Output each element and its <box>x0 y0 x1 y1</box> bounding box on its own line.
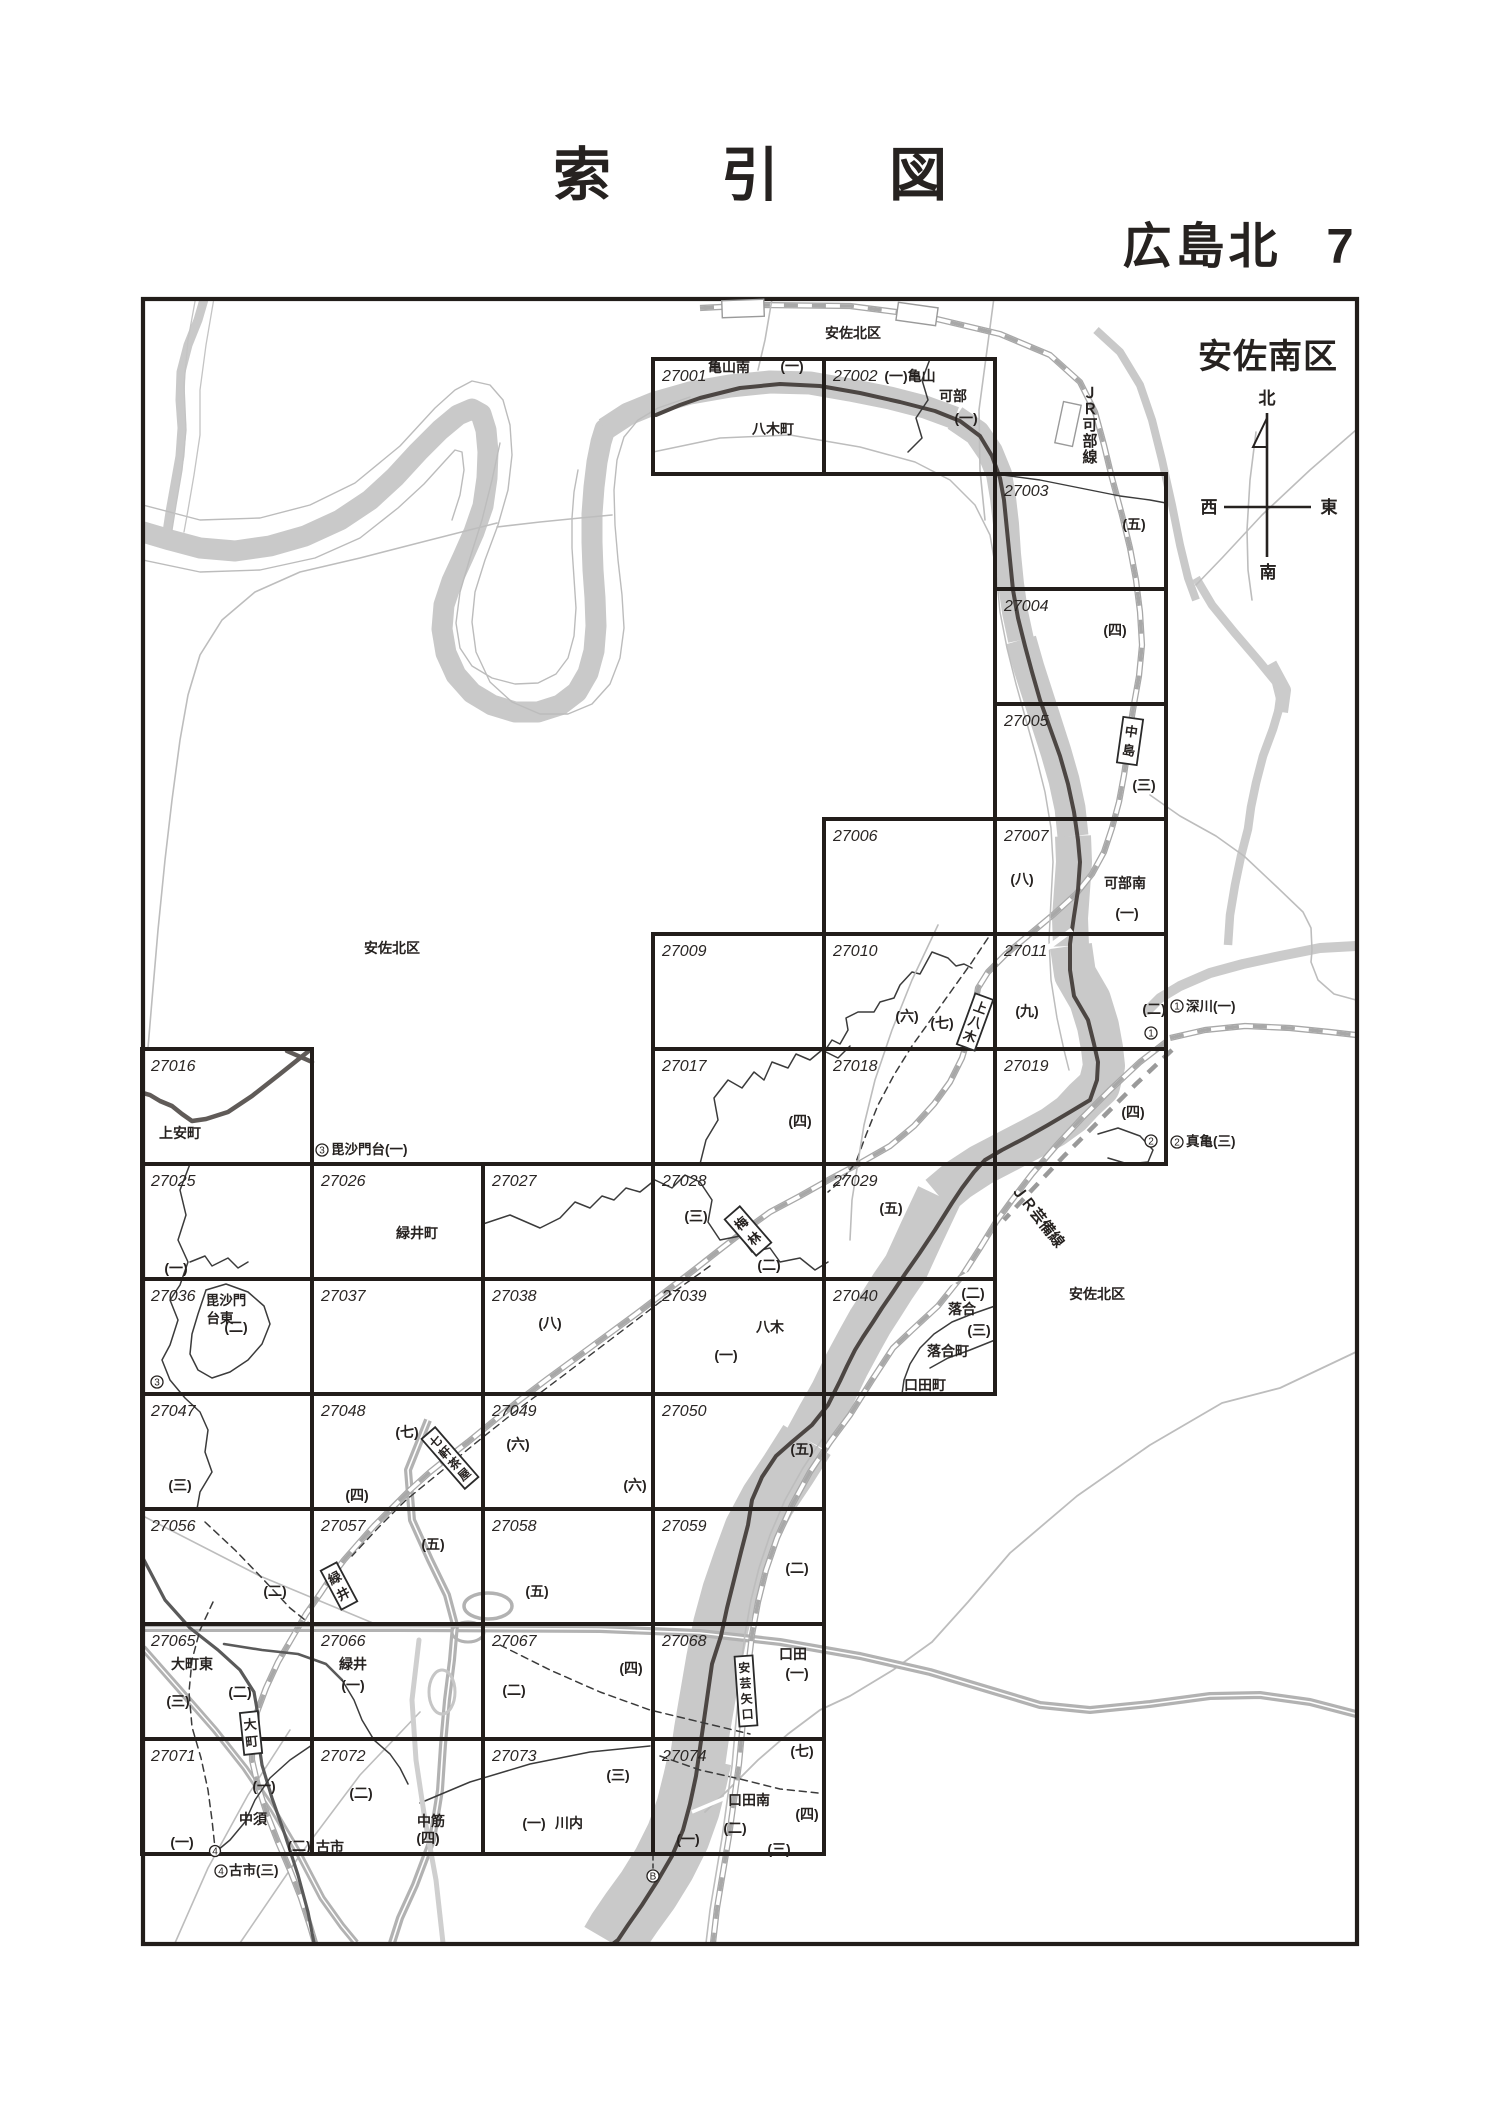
svg-text:27040: 27040 <box>832 1288 878 1305</box>
svg-text:27038: 27038 <box>491 1288 537 1305</box>
svg-text:(二): (二) <box>785 1560 808 1576</box>
svg-text:(六): (六) <box>506 1436 529 1452</box>
svg-text:(五): (五) <box>790 1441 813 1457</box>
svg-text:口田町: 口田町 <box>904 1377 946 1393</box>
svg-text:27071: 27071 <box>150 1748 196 1765</box>
svg-text:27001: 27001 <box>661 368 707 385</box>
svg-text:27028: 27028 <box>661 1173 707 1190</box>
svg-text:27048: 27048 <box>320 1403 366 1420</box>
svg-text:1: 1 <box>1174 1002 1180 1013</box>
svg-text:27016: 27016 <box>150 1058 196 1075</box>
svg-text:27039: 27039 <box>661 1288 707 1305</box>
svg-text:27027: 27027 <box>491 1173 538 1190</box>
svg-text:(五): (五) <box>879 1200 902 1216</box>
svg-text:中筋: 中筋 <box>417 1813 445 1829</box>
svg-text:(二): (二) <box>723 1820 746 1836</box>
svg-text:27073: 27073 <box>491 1748 537 1765</box>
svg-text:27067: 27067 <box>491 1633 538 1650</box>
svg-text:27049: 27049 <box>491 1403 537 1420</box>
svg-text:Ｊ: Ｊ <box>1082 385 1097 402</box>
svg-text:(四): (四) <box>619 1660 642 1676</box>
svg-text:島: 島 <box>1121 742 1136 759</box>
svg-text:(一): (一) <box>522 1815 545 1831</box>
svg-text:27011: 27011 <box>1003 943 1047 960</box>
svg-text:古市: 古市 <box>316 1839 344 1855</box>
svg-text:可部南: 可部南 <box>1104 875 1146 891</box>
svg-text:中須: 中須 <box>239 1811 268 1827</box>
svg-text:2: 2 <box>1148 1137 1154 1148</box>
svg-text:大町東: 大町東 <box>171 1656 213 1672</box>
svg-text:緑井町: 緑井町 <box>396 1225 438 1241</box>
svg-text:北: 北 <box>1259 389 1276 408</box>
svg-text:(三): (三) <box>767 1841 790 1857</box>
svg-text:(三): (三) <box>967 1322 990 1338</box>
svg-text:西: 西 <box>1201 498 1218 517</box>
svg-text:27029: 27029 <box>832 1173 878 1190</box>
svg-text:(二): (二) <box>228 1684 251 1700</box>
svg-text:落合: 落合 <box>948 1301 977 1317</box>
svg-text:27072: 27072 <box>320 1748 366 1765</box>
svg-text:7: 7 <box>1326 220 1353 274</box>
svg-text:中: 中 <box>1124 723 1139 740</box>
svg-text:(四): (四) <box>795 1806 818 1822</box>
svg-text:東: 東 <box>1321 497 1338 517</box>
svg-text:27057: 27057 <box>320 1518 367 1535</box>
svg-text:(一): (一) <box>780 358 803 374</box>
svg-text:27047: 27047 <box>150 1403 197 1420</box>
svg-text:(四): (四) <box>1121 1104 1144 1120</box>
svg-text:(六): (六) <box>623 1477 646 1493</box>
svg-text:(三): (三) <box>684 1208 707 1224</box>
svg-text:(二): (二) <box>502 1682 525 1698</box>
svg-text:3: 3 <box>319 1146 325 1157</box>
svg-text:3: 3 <box>154 1378 160 1389</box>
svg-text:口: 口 <box>741 1707 754 1722</box>
svg-text:4: 4 <box>218 1867 224 1878</box>
svg-text:(一): (一) <box>1115 905 1138 921</box>
svg-text:27059: 27059 <box>661 1518 707 1535</box>
svg-text:(二): (二) <box>287 1838 310 1854</box>
svg-text:(五): (五) <box>1122 516 1145 532</box>
svg-text:27002: 27002 <box>832 368 878 385</box>
svg-text:27005: 27005 <box>1003 713 1049 730</box>
svg-text:安佐北区: 安佐北区 <box>364 940 420 956</box>
svg-text:27009: 27009 <box>661 943 707 960</box>
svg-text:(四): (四) <box>416 1830 439 1846</box>
svg-text:(一): (一) <box>252 1778 275 1794</box>
svg-text:(一): (一) <box>714 1347 737 1363</box>
svg-text:広島北: 広島北 <box>1122 220 1281 274</box>
svg-text:深川(一): 深川(一) <box>1186 998 1236 1014</box>
svg-text:部: 部 <box>1082 432 1097 450</box>
svg-text:川内: 川内 <box>554 1815 583 1831</box>
svg-text:27003: 27003 <box>1003 483 1049 500</box>
svg-text:(一): (一) <box>164 1260 187 1276</box>
svg-text:八木: 八木 <box>755 1319 785 1335</box>
svg-text:(一): (一) <box>676 1831 699 1847</box>
svg-text:27050: 27050 <box>661 1403 707 1420</box>
svg-text:(三): (三) <box>168 1477 191 1493</box>
svg-text:(七): (七) <box>395 1424 418 1440</box>
svg-text:(一): (一) <box>785 1665 808 1681</box>
svg-text:(二): (二) <box>961 1285 984 1301</box>
svg-text:(二): (二) <box>349 1785 372 1801</box>
svg-text:27074: 27074 <box>661 1748 707 1765</box>
svg-text:(六): (六) <box>895 1008 918 1024</box>
svg-text:安佐北区: 安佐北区 <box>1069 1286 1125 1302</box>
svg-text:毘沙門: 毘沙門 <box>206 1293 247 1308</box>
svg-text:27037: 27037 <box>320 1288 367 1305</box>
svg-text:27025: 27025 <box>150 1173 196 1190</box>
svg-text:B: B <box>650 1872 657 1883</box>
svg-text:真亀(三): 真亀(三) <box>1186 1133 1236 1149</box>
svg-text:大: 大 <box>243 1716 258 1732</box>
svg-text:1: 1 <box>1148 1029 1154 1040</box>
svg-text:芸: 芸 <box>739 1675 752 1691</box>
svg-text:(五): (五) <box>421 1536 444 1552</box>
svg-text:(一): (一) <box>170 1834 193 1850</box>
svg-text:27058: 27058 <box>491 1518 537 1535</box>
svg-text:Ｒ: Ｒ <box>1082 401 1097 418</box>
svg-text:(八): (八) <box>538 1315 561 1331</box>
svg-text:27010: 27010 <box>832 943 878 960</box>
svg-text:(四): (四) <box>1103 622 1126 638</box>
svg-text:図: 図 <box>889 143 947 208</box>
svg-text:口田: 口田 <box>779 1646 807 1662</box>
svg-text:(二): (二) <box>757 1257 780 1273</box>
svg-text:亀山南: 亀山南 <box>708 359 750 375</box>
svg-text:毘沙門台(一): 毘沙門台(一) <box>331 1141 408 1157</box>
svg-text:南: 南 <box>1260 562 1277 582</box>
svg-text:27018: 27018 <box>832 1058 878 1075</box>
svg-text:27007: 27007 <box>1003 828 1050 845</box>
svg-text:索: 索 <box>553 143 611 208</box>
svg-text:安: 安 <box>738 1660 751 1676</box>
svg-text:落合町: 落合町 <box>927 1343 969 1359</box>
svg-text:町: 町 <box>245 1733 260 1749</box>
svg-text:口田南: 口田南 <box>728 1792 770 1808</box>
svg-text:安佐南区: 安佐南区 <box>1198 338 1338 376</box>
svg-text:(七): (七) <box>930 1015 953 1031</box>
svg-text:緑井: 緑井 <box>339 1656 367 1672</box>
svg-text:(二): (二) <box>1142 1001 1165 1017</box>
svg-text:(三): (三) <box>166 1693 189 1709</box>
svg-text:(三): (三) <box>1132 777 1155 793</box>
svg-text:(一): (一) <box>954 410 977 426</box>
svg-text:27017: 27017 <box>661 1058 708 1075</box>
svg-text:(二): (二) <box>224 1319 247 1335</box>
svg-text:27056: 27056 <box>150 1518 196 1535</box>
svg-text:引: 引 <box>721 143 779 208</box>
svg-text:27065: 27065 <box>150 1633 196 1650</box>
svg-text:4: 4 <box>212 1847 218 1858</box>
svg-text:(三): (三) <box>606 1767 629 1783</box>
svg-text:可部: 可部 <box>939 388 967 404</box>
svg-text:27068: 27068 <box>661 1633 707 1650</box>
svg-text:27019: 27019 <box>1003 1058 1049 1075</box>
svg-text:線: 線 <box>1082 448 1097 466</box>
svg-text:(五): (五) <box>525 1583 548 1599</box>
svg-text:(四): (四) <box>345 1487 368 1503</box>
svg-text:(九): (九) <box>1015 1003 1038 1019</box>
svg-text:27004: 27004 <box>1003 598 1049 615</box>
svg-text:安佐北区: 安佐北区 <box>825 325 881 341</box>
svg-text:(一): (一) <box>341 1677 364 1693</box>
svg-text:27026: 27026 <box>320 1173 366 1190</box>
svg-text:(七): (七) <box>790 1743 813 1759</box>
svg-text:(一)亀山: (一)亀山 <box>884 368 935 384</box>
svg-text:(八): (八) <box>1010 871 1033 887</box>
svg-text:上安町: 上安町 <box>159 1125 201 1141</box>
svg-text:27036: 27036 <box>150 1288 196 1305</box>
svg-text:(二): (二) <box>263 1583 286 1599</box>
svg-text:古市(三): 古市(三) <box>229 1862 279 1878</box>
svg-text:八木町: 八木町 <box>751 421 794 437</box>
svg-text:可: 可 <box>1082 417 1097 434</box>
svg-text:27006: 27006 <box>832 828 878 845</box>
svg-text:2: 2 <box>1174 1138 1180 1149</box>
svg-text:27066: 27066 <box>320 1633 366 1650</box>
svg-text:(四): (四) <box>788 1113 811 1129</box>
svg-text:矢: 矢 <box>740 1690 754 1706</box>
